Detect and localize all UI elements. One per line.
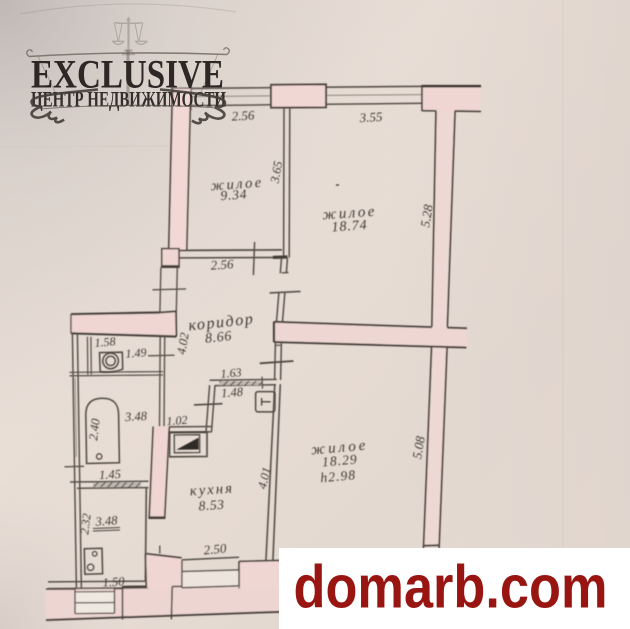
svg-text:3.48: 3.48 bbox=[124, 409, 148, 424]
svg-text:3.48: 3.48 bbox=[94, 513, 119, 529]
svg-text:2.40: 2.40 bbox=[86, 417, 103, 441]
svg-text:2.32: 2.32 bbox=[77, 513, 93, 536]
svg-text:8.66: 8.66 bbox=[204, 329, 232, 347]
svg-text:2.50: 2.50 bbox=[203, 540, 227, 557]
svg-text:18.74: 18.74 bbox=[331, 218, 368, 235]
svg-text:1.49: 1.49 bbox=[125, 345, 147, 360]
svg-text:3.55: 3.55 bbox=[358, 109, 383, 125]
svg-text:9.34: 9.34 bbox=[220, 186, 248, 203]
svg-text:8.53: 8.53 bbox=[198, 497, 225, 514]
svg-text:1.02: 1.02 bbox=[166, 413, 188, 428]
svg-text:1.58: 1.58 bbox=[94, 334, 116, 350]
svg-text:2.56: 2.56 bbox=[210, 256, 234, 273]
svg-text:2.56: 2.56 bbox=[231, 107, 255, 123]
svg-text:1.50: 1.50 bbox=[102, 574, 126, 590]
svg-text:1.63: 1.63 bbox=[220, 365, 242, 381]
svg-text:1.48: 1.48 bbox=[221, 385, 245, 401]
svg-text:domarb.com: domarb.com bbox=[294, 554, 608, 621]
svg-text:h2.98: h2.98 bbox=[320, 467, 357, 485]
svg-text:1.45: 1.45 bbox=[99, 467, 122, 482]
